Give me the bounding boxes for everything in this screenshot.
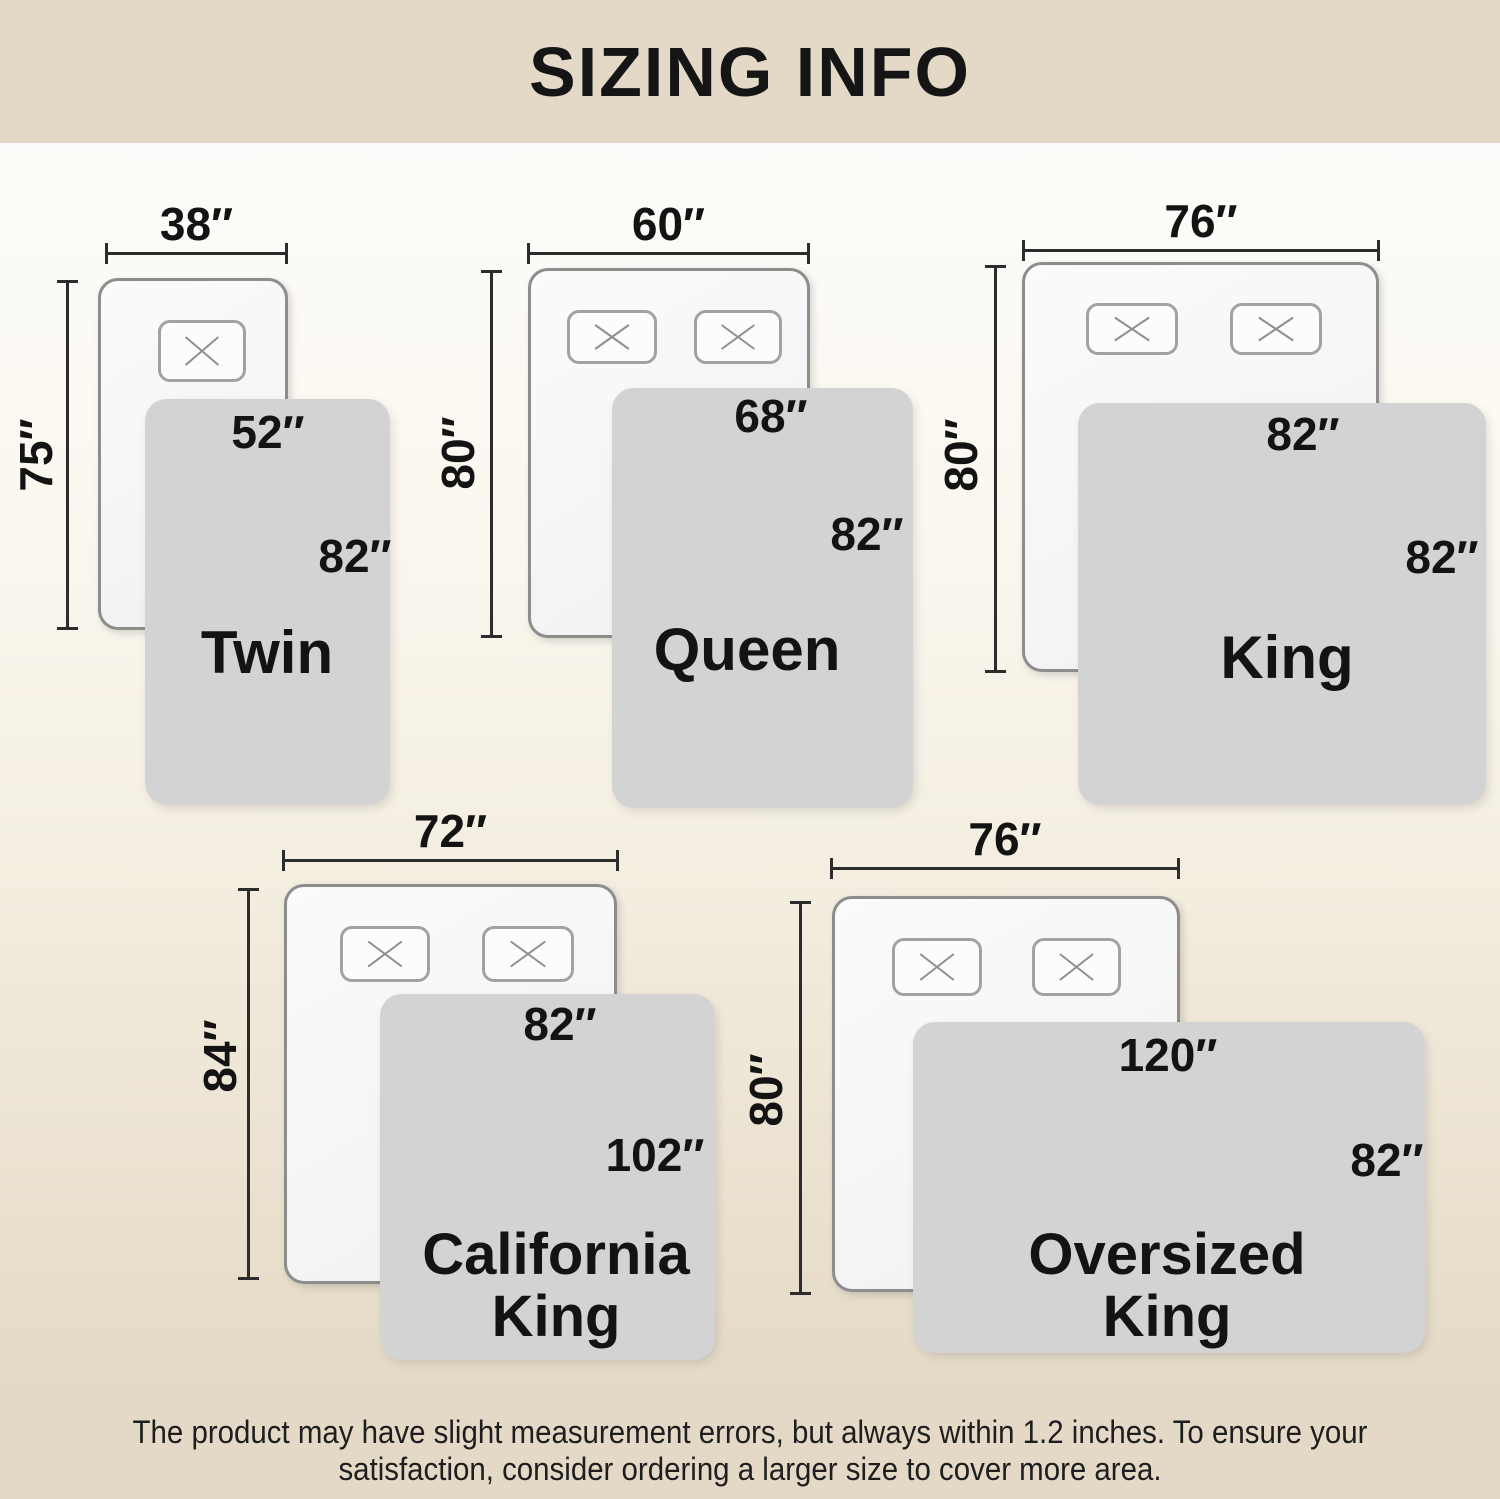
bed-length-dimension-line — [66, 280, 69, 630]
size-name-line2: King — [1103, 1284, 1232, 1349]
bed-width-dimension-line — [105, 252, 288, 255]
blanket-width-label: 82″ — [1223, 406, 1383, 462]
size-name-label: Twin — [117, 621, 417, 685]
size-name-label: Queen — [597, 618, 897, 682]
bed-length-dimension-line — [994, 265, 997, 673]
disclaimer-line1: The product may have slight measurement … — [133, 1414, 1368, 1450]
pillow-x-icon — [570, 313, 654, 361]
pillow-icon — [1230, 303, 1322, 355]
bed-length-label: 80″ — [430, 403, 486, 503]
pillow-icon — [158, 320, 246, 382]
blanket-width-label: 82″ — [480, 996, 640, 1052]
pillow-icon — [694, 310, 782, 364]
bed-width-label: 60″ — [527, 196, 810, 252]
blanket-width-label: 52″ — [188, 404, 348, 460]
blanket-length-label: 82″ — [1307, 1132, 1467, 1188]
bed-length-label: 75″ — [8, 405, 64, 505]
pillow-x-icon — [485, 929, 571, 979]
bed-length-dimension-line — [490, 270, 493, 638]
pillow-x-icon — [161, 323, 243, 379]
bed-width-dimension-line — [282, 859, 619, 862]
pillow-x-icon — [697, 313, 779, 361]
bed-length-label: 80″ — [738, 1040, 794, 1140]
pillow-x-icon — [343, 929, 427, 979]
pillow-icon — [1032, 938, 1121, 996]
bed-length-label: 84″ — [192, 1006, 248, 1106]
bed-width-dimension-line — [1022, 249, 1380, 252]
blanket-length-label: 102″ — [550, 1127, 760, 1183]
bed-length-label: 80″ — [933, 405, 989, 505]
size-name-line1: Oversized — [1028, 1222, 1305, 1287]
pillow-icon — [567, 310, 657, 364]
size-name-label: CaliforniaKing — [336, 1224, 776, 1348]
pillow-icon — [1086, 303, 1178, 355]
pillow-icon — [892, 938, 982, 996]
pillow-icon — [482, 926, 574, 982]
size-name-label: OversizedKing — [917, 1224, 1417, 1348]
blanket-width-label: 120″ — [1068, 1027, 1268, 1083]
blanket-swatch — [612, 388, 913, 808]
pillow-x-icon — [895, 941, 979, 993]
blanket-length-label: 82″ — [787, 506, 947, 562]
size-name-line2: King — [492, 1284, 621, 1349]
disclaimer-line2: satisfaction, consider ordering a larger… — [338, 1451, 1161, 1487]
bed-width-dimension-line — [527, 252, 810, 255]
bed-width-label: 38″ — [105, 196, 288, 252]
disclaimer-text: The product may have slight measurement … — [60, 1414, 1440, 1488]
pillow-icon — [340, 926, 430, 982]
bed-width-label: 72″ — [282, 803, 619, 859]
blanket-length-label: 82″ — [1362, 529, 1500, 585]
blanket-length-label: 82″ — [275, 528, 435, 584]
pillow-x-icon — [1089, 306, 1175, 352]
sizing-info-graphic: SIZING INFO 38″ 75″ 52″ 82″ Twin 60″ 80″… — [0, 0, 1500, 1499]
header-band: SIZING INFO — [0, 0, 1500, 143]
blanket-swatch — [1078, 403, 1486, 805]
bed-width-label: 76″ — [1022, 193, 1380, 249]
pillow-x-icon — [1035, 941, 1118, 993]
bed-width-label: 76″ — [830, 811, 1180, 867]
blanket-width-label: 68″ — [691, 388, 851, 444]
size-name-line1: California — [422, 1222, 690, 1287]
bed-length-dimension-line — [799, 901, 802, 1295]
page-title: SIZING INFO — [529, 32, 971, 112]
bed-width-dimension-line — [830, 867, 1180, 870]
pillow-x-icon — [1233, 306, 1319, 352]
size-name-label: King — [1137, 626, 1437, 690]
